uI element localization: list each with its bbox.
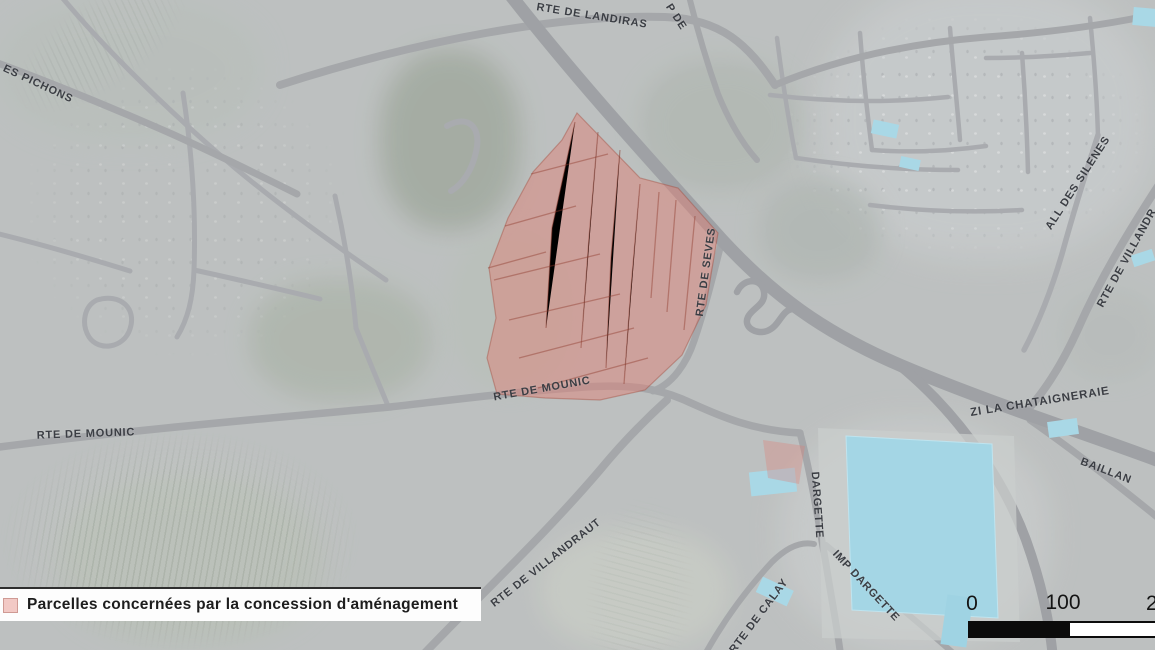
parcels-layer [0, 0, 1155, 650]
scalebar-tick-0: 0 [966, 592, 978, 616]
map-legend: Parcelles concernées par la concession d… [0, 587, 481, 621]
scalebar-tick-200: 200 [1146, 592, 1155, 616]
legend-label: Parcelles concernées par la concession d… [27, 596, 458, 614]
scalebar-tick-100: 100 [1045, 591, 1080, 615]
scalebar-black-segment [968, 621, 1068, 638]
parcel-highlight [487, 113, 805, 484]
scalebar-white-segment [1068, 621, 1155, 638]
concession-parcels-area-small [763, 440, 805, 484]
buildings [749, 7, 1155, 648]
legend-swatch-parcels [3, 598, 18, 613]
map-canvas[interactable]: RTE DE LANDIRAS P DE ES PICHONS ALL DES … [0, 0, 1155, 650]
